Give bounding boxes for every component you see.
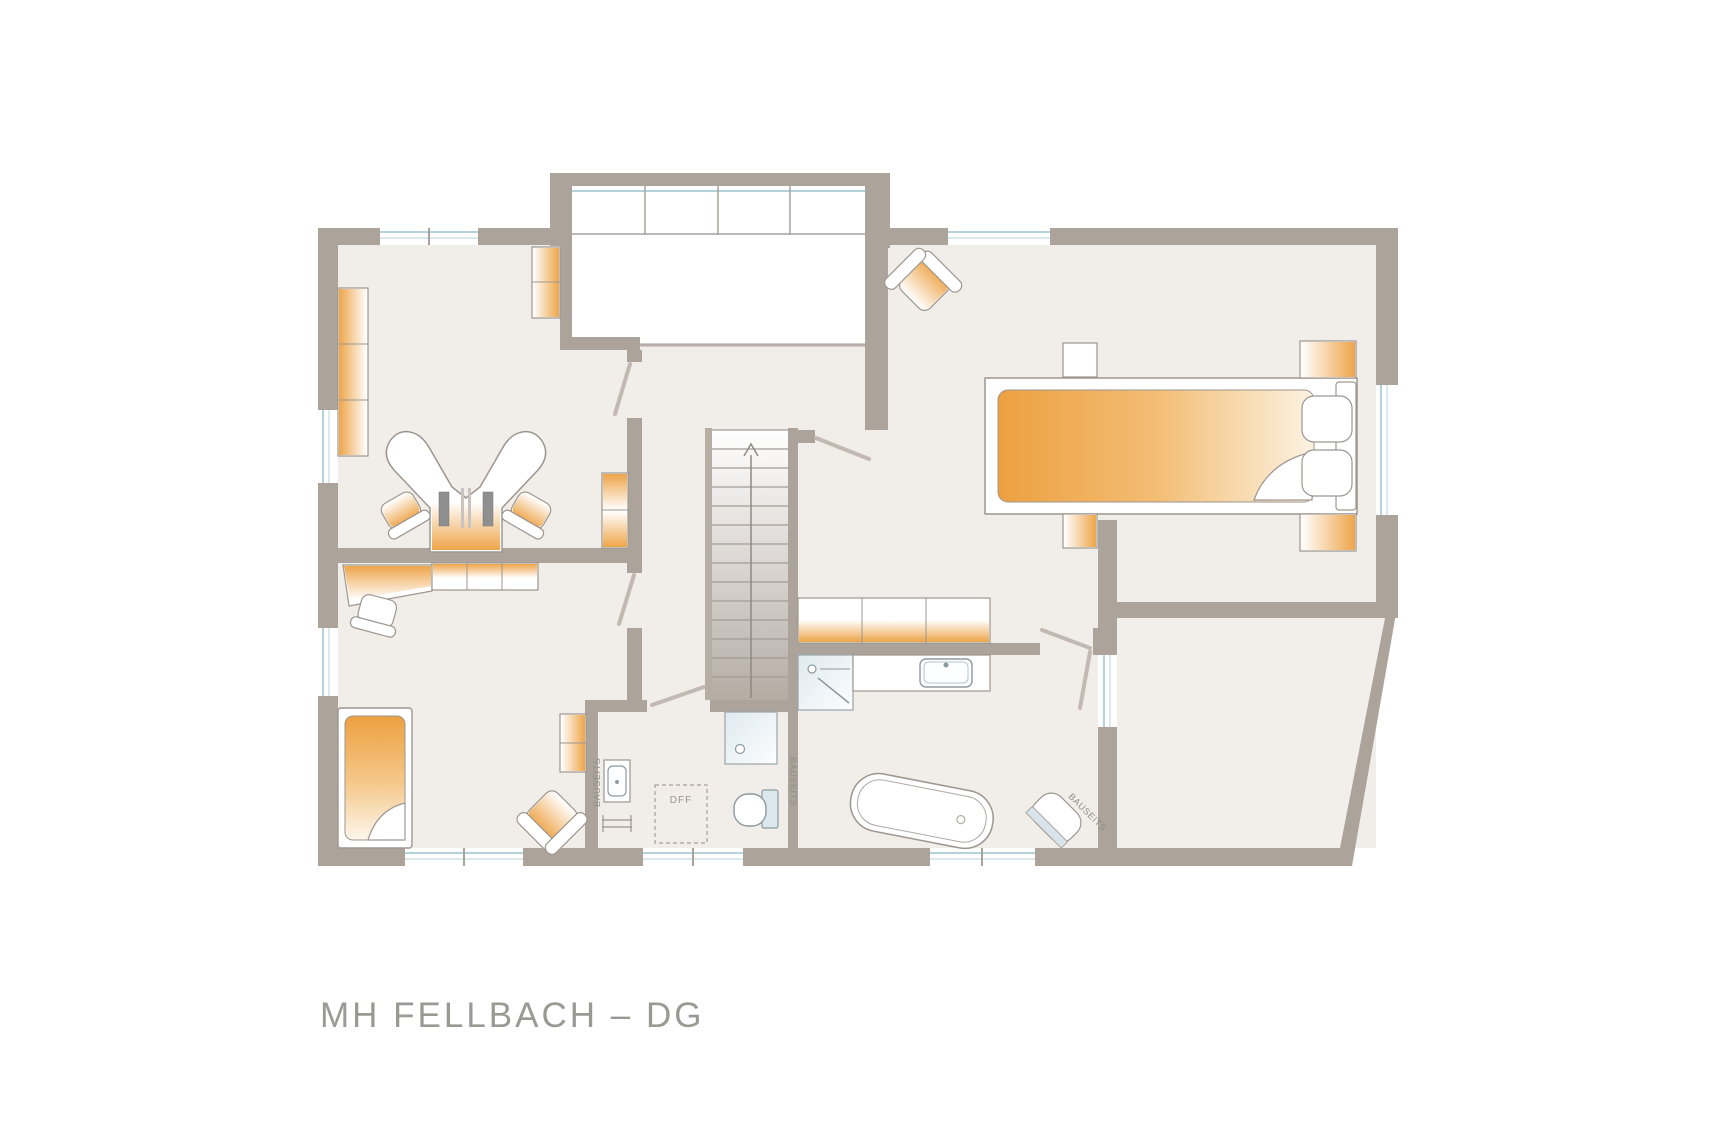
- desk-divider: [468, 488, 471, 528]
- toilet-icon: [734, 790, 778, 828]
- single-bed-icon: [338, 708, 412, 848]
- nightstand-icon: [1300, 341, 1356, 378]
- pillow-icon: [1302, 450, 1352, 496]
- wall: [627, 418, 642, 548]
- floorplan-canvas: DFF BAUSEITS BAUSEITS BAUSEITS MH FELLBA…: [0, 0, 1720, 1126]
- shower-icon: [798, 655, 853, 710]
- side-table-icon: [1063, 343, 1097, 377]
- office-wardrobe-right: [532, 247, 560, 318]
- vanity-sink-icon: [853, 655, 990, 691]
- wall: [560, 245, 572, 337]
- pillow-icon: [1302, 396, 1352, 442]
- floorplan-drawing: DFF BAUSEITS BAUSEITS BAUSEITS: [0, 0, 1720, 1126]
- wall: [710, 700, 792, 712]
- window-icon: [405, 848, 523, 866]
- glazed-door-icon: [1098, 655, 1117, 727]
- wall: [560, 337, 640, 350]
- staircase: [712, 430, 788, 700]
- desk-divider: [461, 488, 464, 528]
- office-cabinet: [602, 473, 628, 548]
- window-icon: [643, 848, 743, 866]
- window-icon: [948, 228, 1050, 245]
- plan-title: MH FELLBACH – DG: [320, 996, 704, 1036]
- window-icon: [318, 410, 338, 483]
- monitor-icon: [483, 492, 493, 526]
- storage-room-floor: [1117, 618, 1385, 848]
- wall: [1093, 628, 1117, 655]
- kids-sideboard: [432, 563, 538, 590]
- window-icon: [380, 228, 478, 245]
- wall: [788, 643, 1040, 655]
- wall: [1098, 520, 1117, 628]
- window-icon: [1376, 385, 1398, 515]
- wall: [627, 628, 642, 700]
- monitor-icon: [439, 492, 449, 526]
- wall: [788, 430, 815, 443]
- shower-icon: [725, 712, 777, 764]
- kids-cabinet: [560, 714, 586, 772]
- office-wardrobe-left: [338, 288, 368, 456]
- wall: [318, 228, 338, 866]
- window-icon: [318, 628, 338, 696]
- nightstand-icon: [1300, 514, 1356, 551]
- wall: [627, 350, 642, 362]
- washbasin-icon: [604, 760, 630, 802]
- double-bed-icon: [985, 378, 1357, 514]
- roof-window-label: DFF: [670, 795, 692, 806]
- bauseits-label-wc-basin: BAUSEITS: [592, 758, 602, 807]
- bauseits-label-wc-shower: BAUSEITS: [788, 757, 798, 806]
- wardrobe-row-icon: [798, 598, 990, 643]
- wall: [865, 173, 890, 248]
- window-icon: [930, 848, 1035, 866]
- wall: [585, 700, 647, 712]
- wall: [1117, 602, 1398, 618]
- wall: [550, 173, 890, 186]
- wall: [865, 247, 888, 430]
- dormer-window-band-icon: [572, 186, 865, 235]
- stair-wall: [705, 428, 712, 700]
- chest-icon: [1063, 514, 1097, 548]
- wall: [627, 563, 642, 573]
